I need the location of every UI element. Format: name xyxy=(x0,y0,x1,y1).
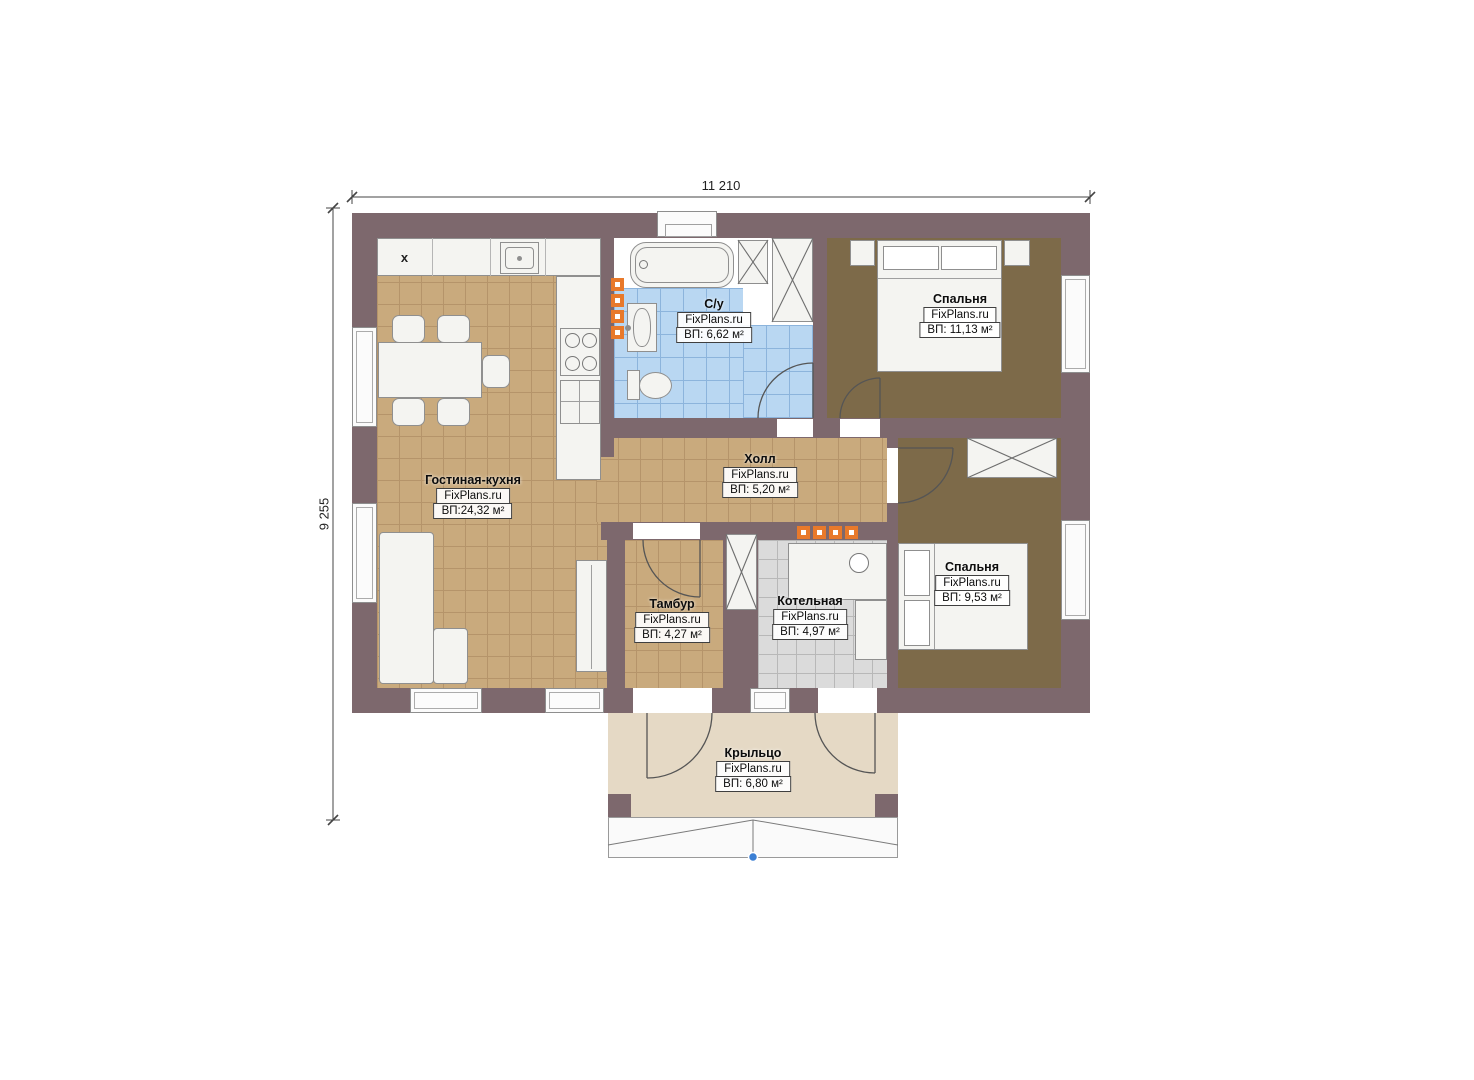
radiator-segment xyxy=(611,278,624,291)
room-label-boiler-room: Котельная FixPlans.ru ВП: 4,97 м² xyxy=(772,594,848,640)
kitchen-sink xyxy=(500,242,539,274)
nightstand xyxy=(1004,240,1030,266)
boiler-counter xyxy=(788,543,887,600)
room-name: С/у xyxy=(704,297,723,311)
watermark: FixPlans.ru xyxy=(677,312,751,328)
porch-steps xyxy=(608,817,898,858)
window-left-2 xyxy=(352,503,377,603)
room-name: Спальня xyxy=(933,292,987,306)
bathroom-sink xyxy=(627,303,657,352)
room-area: ВП: 4,27 м² xyxy=(634,627,710,643)
window-right-1 xyxy=(1061,275,1090,373)
room-label-bathroom: С/у FixPlans.ru ВП: 6,62 м² xyxy=(676,297,752,343)
fridge-marker: x xyxy=(377,240,432,274)
room-name: Котельная xyxy=(777,594,842,608)
dimension-height-label: 9 255 xyxy=(317,498,332,531)
wall-vestibule-left xyxy=(607,522,625,688)
dining-table xyxy=(378,342,482,398)
porch-pillar xyxy=(875,794,898,817)
wall-bathroom-bedroom1 xyxy=(813,238,827,419)
room-name: Холл xyxy=(744,452,775,466)
window-right-2 xyxy=(1061,520,1090,620)
closet-shaft-2 xyxy=(772,238,813,322)
room-label-bedroom-1: Спальня FixPlans.ru ВП: 11,13 м² xyxy=(919,292,1000,338)
kitchen-counter-right xyxy=(556,276,601,480)
chair xyxy=(482,355,510,388)
room-area: ВП: 6,80 м² xyxy=(715,776,791,792)
counter-divider xyxy=(490,238,491,276)
bedroom1-door-opening xyxy=(840,419,880,437)
watermark: FixPlans.ru xyxy=(635,612,709,628)
room-name: Спальня xyxy=(945,560,999,574)
watermark: FixPlans.ru xyxy=(773,609,847,625)
kitchen-appliance xyxy=(560,380,600,424)
radiator-segment xyxy=(611,326,624,339)
bedroom2-door-opening xyxy=(887,448,898,503)
toilet-bowl xyxy=(639,372,672,399)
sofa-section xyxy=(433,628,468,684)
window-bottom-1 xyxy=(410,688,482,713)
sofa xyxy=(379,532,434,684)
vestibule-wardrobe xyxy=(726,534,757,610)
room-area: ВП: 9,53 м² xyxy=(934,590,1010,606)
chair xyxy=(437,315,470,343)
boiler-door-opening xyxy=(818,688,877,713)
radiator-segment xyxy=(845,526,858,539)
radiator-segment xyxy=(813,526,826,539)
boiler-unit xyxy=(849,553,869,573)
watermark: FixPlans.ru xyxy=(923,307,997,323)
vent-block xyxy=(657,211,717,237)
radiator-segment xyxy=(829,526,842,539)
room-label-bedroom-2: Спальня FixPlans.ru ВП: 9,53 м² xyxy=(934,560,1010,606)
entrance-door-opening xyxy=(633,688,712,713)
vestibule-door-opening xyxy=(633,523,700,539)
window-boiler xyxy=(750,688,790,713)
floor-plan-canvas: x xyxy=(0,0,1474,1080)
room-label-vestibule: Тамбур FixPlans.ru ВП: 4,27 м² xyxy=(634,597,710,643)
bathtub xyxy=(630,242,734,288)
room-name: Тамбур xyxy=(649,597,694,611)
room-name: Гостиная-кухня xyxy=(425,473,521,487)
wall-hall-top xyxy=(600,418,1061,438)
window-bottom-2 xyxy=(545,688,604,713)
room-label-hall: Холл FixPlans.ru ВП: 5,20 м² xyxy=(722,452,798,498)
room-label-living-kitchen: Гостиная-кухня FixPlans.ru ВП:24,32 м² xyxy=(425,473,521,519)
watermark: FixPlans.ru xyxy=(935,575,1009,591)
radiator-segment xyxy=(797,526,810,539)
bathroom-tile-2 xyxy=(743,325,813,419)
room-area: ВП:24,32 м² xyxy=(434,503,513,519)
wardrobe xyxy=(967,438,1057,478)
stove xyxy=(560,328,600,376)
radiator-segment xyxy=(611,310,624,323)
counter-divider xyxy=(545,238,546,276)
chair xyxy=(437,398,470,426)
porch-pillar xyxy=(608,794,631,817)
room-name: Крыльцо xyxy=(725,746,782,760)
chair xyxy=(392,315,425,343)
window-left-1 xyxy=(352,327,377,427)
bathroom-door-opening xyxy=(777,419,813,437)
room-area: ВП: 4,97 м² xyxy=(772,624,848,640)
counter-divider xyxy=(432,238,433,276)
watermark: FixPlans.ru xyxy=(716,761,790,777)
nightstand xyxy=(850,240,875,266)
watermark: FixPlans.ru xyxy=(723,467,797,483)
chair xyxy=(392,398,425,426)
room-area: ВП: 11,13 м² xyxy=(919,322,1000,338)
room-area: ВП: 5,20 м² xyxy=(722,482,798,498)
radiator-segment xyxy=(611,294,624,307)
room-label-porch: Крыльцо FixPlans.ru ВП: 6,80 м² xyxy=(715,746,791,792)
closet-shaft-1 xyxy=(738,240,768,284)
cabinet xyxy=(576,560,607,672)
watermark: FixPlans.ru xyxy=(436,488,510,504)
dimension-width-label: 11 210 xyxy=(702,178,741,193)
room-area: ВП: 6,62 м² xyxy=(676,327,752,343)
boiler-counter-side xyxy=(855,600,887,660)
